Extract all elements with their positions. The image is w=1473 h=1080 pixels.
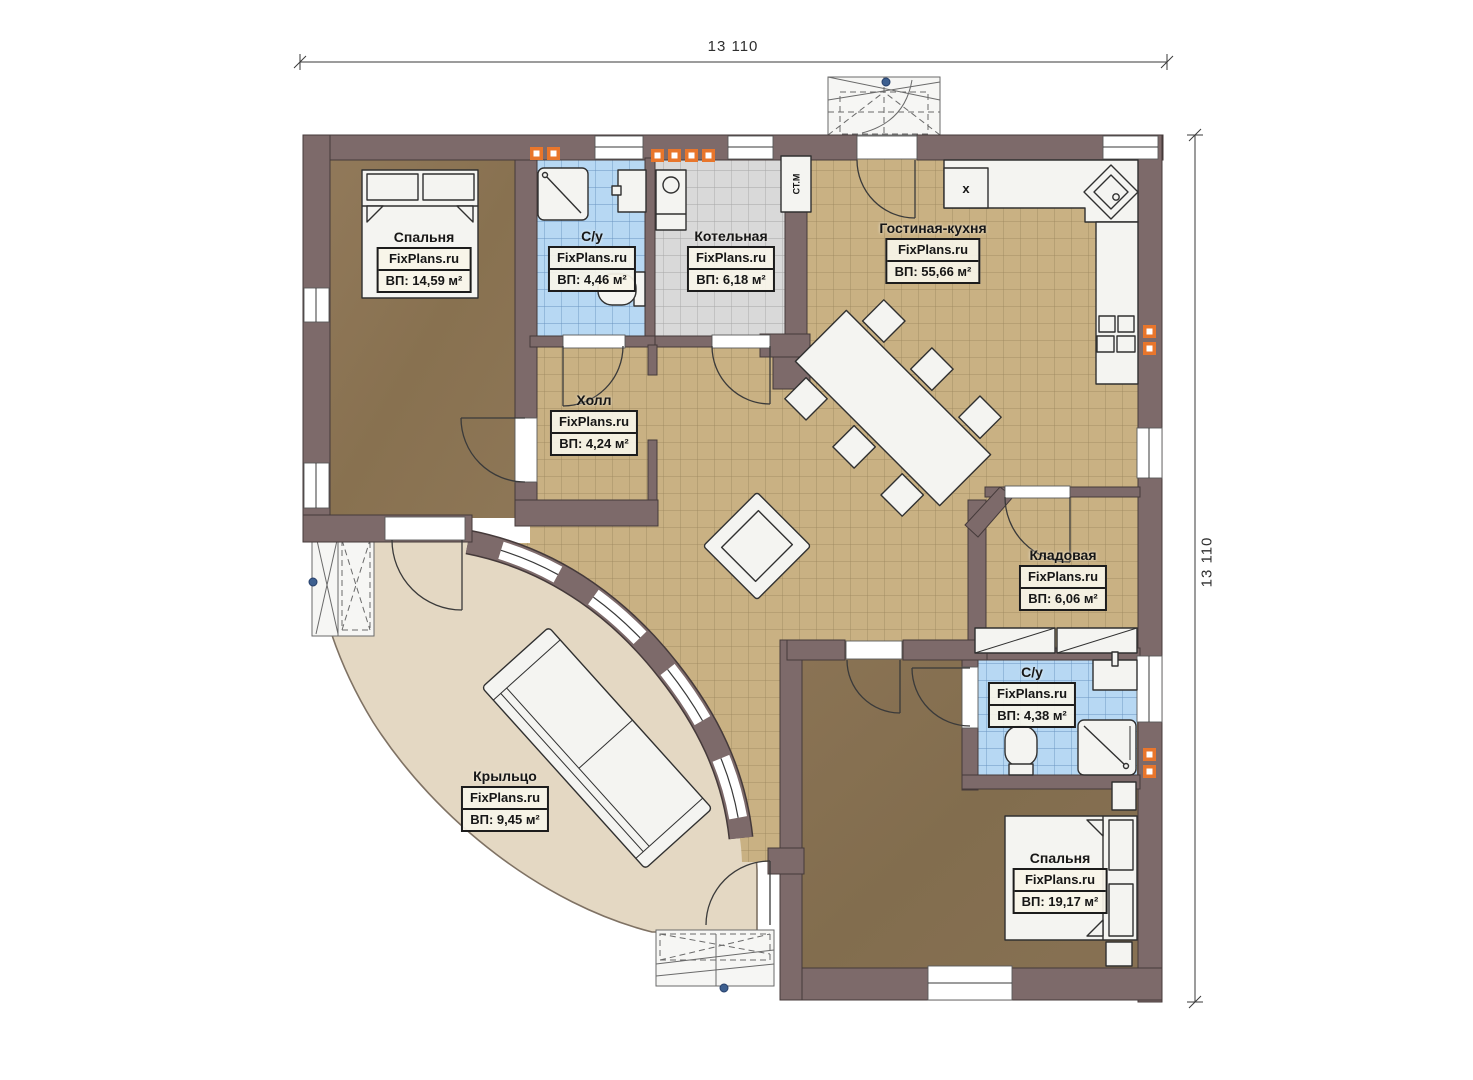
room-info-box: FixPlans.ru ВП: 4,38 м² (988, 682, 1076, 728)
dimension-right-label: 13 110 (1199, 537, 1216, 588)
room-area: ВП: 4,38 м² (990, 704, 1074, 726)
room-brand: FixPlans.ru (1015, 870, 1106, 890)
floor-plan-drawing (0, 0, 1473, 1080)
room-info-box: FixPlans.ru ВП: 6,18 м² (687, 246, 775, 292)
shower-2 (1078, 720, 1136, 775)
shower-1 (538, 168, 588, 220)
room-brand: FixPlans.ru (1021, 567, 1105, 587)
room-label-bathroom-2: С/у FixPlans.ru ВП: 4,38 м² (988, 664, 1076, 728)
room-info-box: FixPlans.ru ВП: 4,24 м² (550, 410, 638, 456)
room-area: ВП: 9,45 м² (463, 808, 547, 830)
room-area: ВП: 55,66 м² (888, 260, 979, 282)
room-label-porch: Крыльцо FixPlans.ru ВП: 9,45 м² (461, 768, 549, 832)
room-area: ВП: 4,46 м² (550, 268, 634, 290)
room-name: Кладовая (1019, 547, 1107, 563)
room-brand: FixPlans.ru (463, 788, 547, 808)
washing-machine-label: СТ.М (781, 156, 811, 212)
bottom-steps (656, 930, 774, 986)
kitchen-appliance-label: x (944, 168, 988, 208)
room-brand: FixPlans.ru (552, 412, 636, 432)
room-label-boiler: Котельная FixPlans.ru ВП: 6,18 м² (687, 228, 775, 292)
room-label-living-kitchen: Гостиная-кухня FixPlans.ru ВП: 55,66 м² (879, 220, 986, 284)
room-label-storage: Кладовая FixPlans.ru ВП: 6,06 м² (1019, 547, 1107, 611)
room-area: ВП: 6,18 м² (689, 268, 773, 290)
room-name: Гостиная-кухня (879, 220, 986, 236)
kitchen-counter-right (1096, 222, 1138, 384)
room-name: Спальня (377, 229, 472, 245)
room-info-box: FixPlans.ru ВП: 9,45 м² (461, 786, 549, 832)
room-brand: FixPlans.ru (379, 249, 470, 269)
room-brand: FixPlans.ru (689, 248, 773, 268)
room-brand: FixPlans.ru (550, 248, 634, 268)
room-name: С/у (548, 228, 636, 244)
entrance-opening (857, 136, 917, 159)
room-name: Котельная (687, 228, 775, 244)
room-label-bedroom-1: Спальня FixPlans.ru ВП: 14,59 м² (377, 229, 472, 293)
room-name: С/у (988, 664, 1076, 680)
dimension-top-label: 13 110 (708, 38, 759, 55)
room-area: ВП: 19,17 м² (1015, 890, 1106, 912)
room-info-box: FixPlans.ru ВП: 14,59 м² (377, 247, 472, 293)
room-name: Крыльцо (461, 768, 549, 784)
room-area: ВП: 4,24 м² (552, 432, 636, 454)
floor-plan-canvas: 13 110 13 110 СТ.М x Спальня FixPlans.ru… (0, 0, 1473, 1080)
boiler-unit (656, 170, 686, 230)
room-name: Холл (550, 392, 638, 408)
room-area: ВП: 6,06 м² (1021, 587, 1105, 609)
room-info-box: FixPlans.ru ВП: 6,06 м² (1019, 565, 1107, 611)
room-info-box: FixPlans.ru ВП: 55,66 м² (886, 238, 981, 284)
room-brand: FixPlans.ru (888, 240, 979, 260)
room-info-box: FixPlans.ru ВП: 19,17 м² (1013, 868, 1108, 914)
room-info-box: FixPlans.ru ВП: 4,46 м² (548, 246, 636, 292)
room-name: Спальня (1013, 850, 1108, 866)
stove (1099, 316, 1115, 332)
room-label-hall: Холл FixPlans.ru ВП: 4,24 м² (550, 392, 638, 456)
side-steps (312, 534, 374, 636)
toilet-2 (1005, 726, 1037, 775)
room-label-bedroom-2: Спальня FixPlans.ru ВП: 19,17 м² (1013, 850, 1108, 914)
room-brand: FixPlans.ru (990, 684, 1074, 704)
room-area: ВП: 14,59 м² (379, 269, 470, 291)
room-label-bathroom-1: С/у FixPlans.ru ВП: 4,46 м² (548, 228, 636, 292)
